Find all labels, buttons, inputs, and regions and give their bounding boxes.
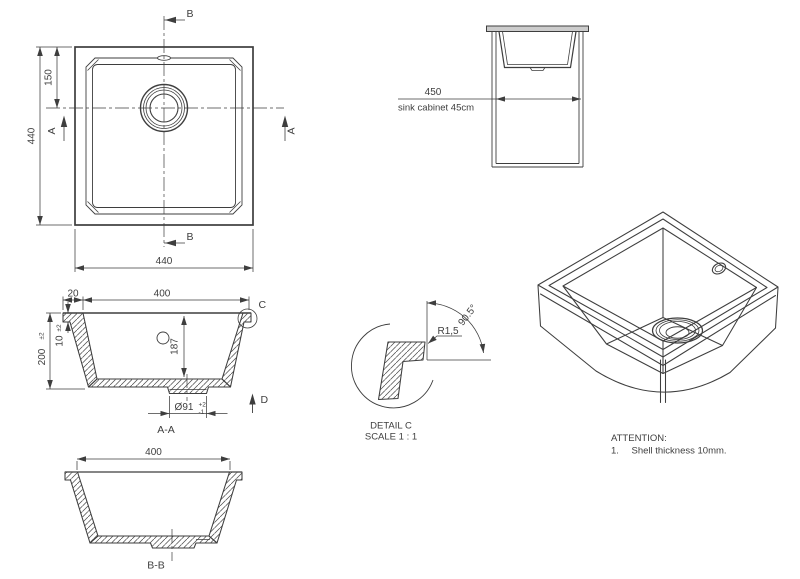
view-marker-d: D: [249, 394, 268, 414]
dim-label-drain-offset: 150: [44, 69, 55, 86]
cabinet-view: 450 sink cabinet 45cm: [398, 26, 589, 167]
countertop: [487, 26, 589, 32]
isometric-view: [538, 212, 778, 403]
detail-c-view: 90.5° R1,5 DETAIL C SCALE 1 : 1: [351, 301, 491, 443]
view-label-d: D: [261, 394, 269, 406]
attention-note: ATTENTION: 1. Shell thickness 10mm.: [611, 433, 727, 457]
dim-label-height-tol: ±2: [39, 332, 46, 340]
dim-label-radius: R1,5: [438, 326, 460, 337]
dim-aa-drain: Ø91 +2 -1: [148, 396, 228, 418]
dim-bb-width: 400: [77, 447, 230, 470]
section-bb-label: B-B: [147, 560, 165, 572]
section-marker-a-left: A: [46, 116, 67, 142]
dim-label-shell-tol: ±2: [56, 324, 63, 332]
dim-label-inner-width: 400: [154, 289, 171, 300]
dim-aa-shell: 10 ±2: [55, 302, 69, 347]
detail-c-title: DETAIL C: [370, 421, 412, 432]
attention-item-number: 1.: [611, 446, 619, 457]
dim-aa-top: 20 400: [63, 289, 249, 311]
wall-right-section: [222, 313, 251, 387]
detail-c-scale: SCALE 1 : 1: [365, 432, 417, 443]
dim-label-plan-width: 440: [156, 256, 173, 267]
dim-label-drain-dia: Ø91: [175, 402, 194, 413]
dim-label-shell: 10: [55, 335, 66, 347]
dim-label-drain-tol-minus: -1: [199, 409, 205, 416]
section-aa-view: C 20 400 200 ±2 10 ±2 187: [37, 289, 269, 437]
section-label-a-left: A: [46, 127, 58, 134]
dim-label-rim: 20: [67, 289, 79, 300]
dim-drain-offset: 150: [44, 47, 58, 108]
attention-item-text: Shell thickness 10mm.: [632, 446, 727, 457]
dim-label-angle: 90.5°: [456, 303, 479, 328]
drawing-canvas: B B A A 440 440: [0, 0, 800, 579]
bb-wall-left: [65, 472, 98, 543]
dim-detail-radius: R1,5: [428, 326, 462, 344]
iso-overflow-hole: [710, 261, 727, 276]
dim-label-drain-tol-plus: +2: [199, 402, 207, 409]
detail-c-letter: C: [259, 299, 267, 311]
section-marker-b-top: B: [164, 8, 194, 23]
detail-wall-section: [379, 342, 426, 400]
iso-body-bottom: [541, 326, 776, 392]
section-bb-view: 400 B-B: [65, 447, 242, 572]
dim-cabinet-width: 450 sink cabinet 45cm: [398, 87, 581, 114]
bb-bottom: [90, 536, 217, 548]
plan-view: B B A A 440 440: [27, 8, 298, 272]
dim-label-height: 200: [37, 348, 48, 365]
section-marker-a-right: A: [282, 116, 298, 142]
sink-in-cabinet: [499, 32, 576, 71]
bottom-section: [89, 379, 231, 394]
dim-label-inner-depth: 187: [170, 338, 181, 355]
dim-label-cabinet-width: 450: [425, 87, 442, 98]
dim-aa-inner-depth: 187: [170, 316, 185, 377]
dim-label-plan-height: 440: [27, 127, 38, 144]
section-label-b-bottom: B: [187, 231, 194, 243]
section-label-a-right: A: [286, 127, 298, 134]
section-marker-b-bottom: B: [164, 231, 194, 246]
overflow-hole-section: [157, 332, 169, 344]
bb-wall-right: [209, 472, 242, 543]
technical-drawing-sheet: B B A A 440 440: [0, 0, 800, 579]
cabinet-caption: sink cabinet 45cm: [398, 103, 474, 114]
attention-title: ATTENTION:: [611, 433, 667, 444]
section-label-b-top: B: [187, 8, 194, 20]
section-aa-label: A-A: [157, 424, 175, 436]
dim-label-bb-width: 400: [145, 447, 162, 458]
